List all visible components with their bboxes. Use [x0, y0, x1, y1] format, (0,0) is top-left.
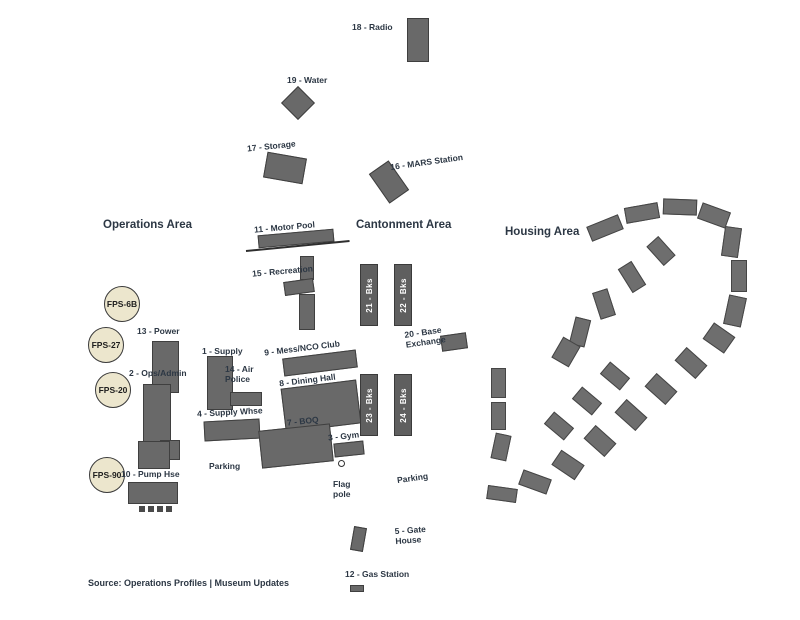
housing-unit-12 [584, 425, 617, 457]
housing-unit-21 [600, 362, 630, 391]
operations-area-title: Operations Area [103, 219, 192, 231]
barracks-24-label: 24 - Bks [399, 388, 408, 423]
bldg-4 [204, 419, 261, 442]
site-map: Operations Area Cantonment Area Housing … [0, 0, 800, 620]
barracks-22: 22 - Bks [394, 264, 412, 326]
housing-unit-24 [618, 261, 646, 293]
housing-unit-2 [624, 202, 660, 224]
source-caption: Source: Operations Profiles | Museum Upd… [88, 578, 289, 588]
fuel-tank-3 [157, 506, 163, 512]
bldg-3 [333, 440, 364, 457]
housing-unit-4 [697, 202, 731, 228]
barracks-21-label: 21 - Bks [365, 278, 374, 313]
housing-unit-7 [723, 294, 747, 327]
bldg-14 [230, 392, 262, 406]
label-13-power: 13 - Power [137, 326, 180, 336]
radar-fps-20: FPS-20 [95, 372, 131, 408]
bldg-10a [138, 441, 170, 469]
housing-unit-23 [592, 288, 616, 320]
bldg-18 [407, 18, 429, 62]
bldg-gas-station [350, 585, 364, 592]
radar-fps-6b: FPS-6B [104, 286, 140, 322]
barracks-24: 24 - Bks [394, 374, 412, 436]
bldg-17 [263, 152, 307, 185]
label-1-supply: 1 - Supply [202, 346, 243, 356]
label-parking-ops: Parking [209, 461, 240, 471]
fuel-tank-4 [166, 506, 172, 512]
radar-fps-90: FPS-90 [89, 457, 125, 493]
cantonment-area-title: Cantonment Area [356, 219, 451, 231]
radar-fps-27: FPS-27 [88, 327, 124, 363]
flagpole-marker [338, 460, 345, 467]
label-10-pump-hse: 10 - Pump Hse [121, 469, 180, 479]
housing-unit-25 [646, 236, 675, 266]
bldg-10b [128, 482, 178, 504]
bldg-19-water-tower [281, 86, 315, 120]
housing-unit-6 [731, 260, 747, 292]
barracks-21: 21 - Bks [360, 264, 378, 326]
housing-area-title: Housing Area [505, 226, 579, 238]
housing-unit-5 [721, 226, 742, 258]
housing-unit-1 [586, 214, 624, 242]
housing-unit-10 [645, 373, 678, 405]
fuel-tank-1 [139, 506, 145, 512]
label-18-radio: 18 - Radio [352, 22, 393, 32]
housing-unit-8 [703, 322, 736, 353]
label-5-gate-house: 5 - Gate House [394, 524, 427, 547]
barracks-23: 23 - Bks [360, 374, 378, 436]
housing-unit-16 [491, 368, 506, 398]
housing-unit-20 [572, 387, 602, 416]
barracks-23-label: 23 - Bks [365, 388, 374, 423]
label-19-water: 19 - Water [287, 75, 327, 85]
label-2-ops-admin: 2 - Ops/Admin [129, 368, 187, 378]
housing-unit-9 [675, 347, 708, 379]
label-16-mars: 16 - MARS Station [390, 152, 464, 172]
bldg-gate-house [350, 526, 367, 552]
barracks-22-label: 22 - Bks [399, 278, 408, 313]
housing-unit-15 [486, 485, 518, 503]
fuel-tank-2 [148, 506, 154, 512]
label-14-air-police: 14 - Air Police [225, 364, 254, 384]
label-4-supply-whse: 4 - Supply Whse [197, 405, 263, 419]
label-20-base-exchange: 20 - Base Exchange [404, 324, 447, 350]
housing-unit-19 [544, 412, 574, 441]
label-flagpole: Flag pole [333, 479, 350, 499]
bldg-15b [299, 294, 315, 330]
housing-unit-13 [551, 450, 584, 481]
housing-unit-18 [490, 433, 511, 462]
label-parking-cant: Parking [396, 471, 428, 485]
housing-unit-11 [615, 399, 648, 431]
bldg-7 [258, 423, 334, 468]
bldg-2 [143, 384, 171, 442]
housing-unit-14 [518, 469, 552, 494]
housing-unit-17 [491, 402, 506, 430]
label-12-gas-station: 12 - Gas Station [345, 569, 409, 579]
housing-unit-3 [663, 198, 698, 215]
